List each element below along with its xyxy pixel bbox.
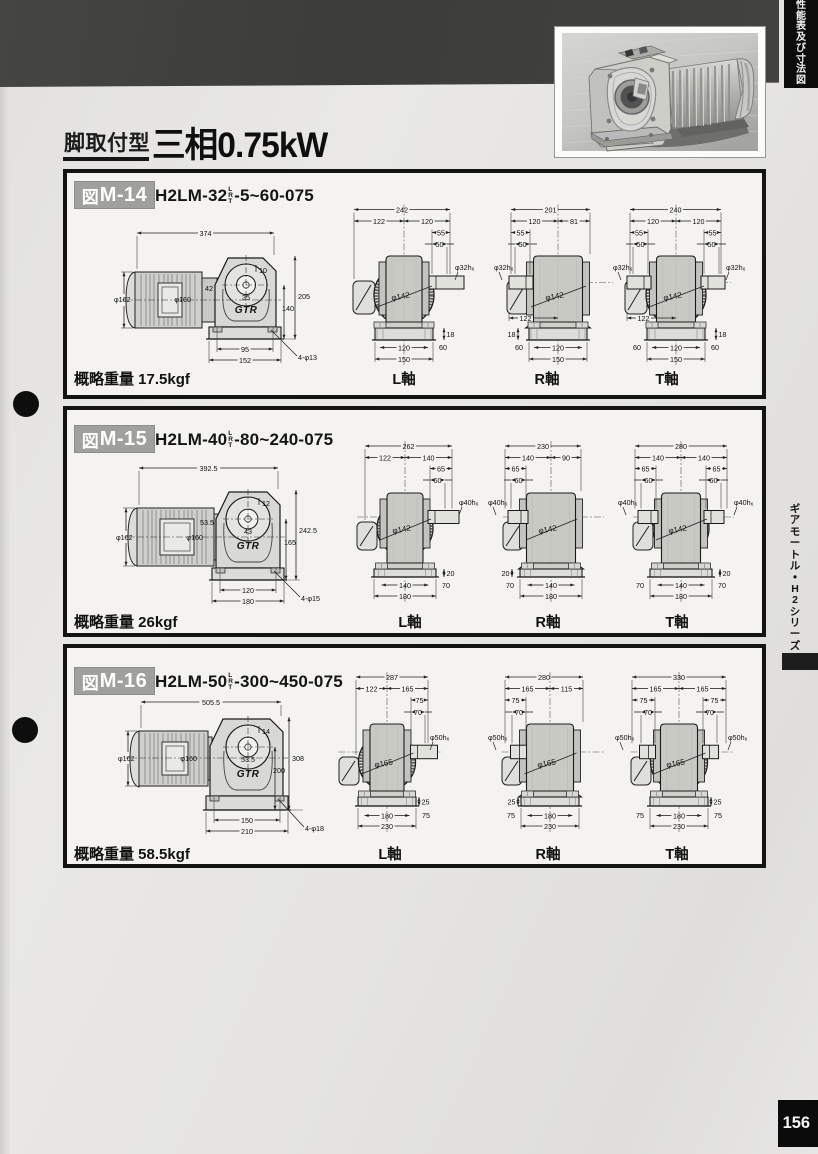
svg-text:230: 230 bbox=[673, 822, 685, 831]
svg-text:150: 150 bbox=[241, 816, 253, 825]
svg-text:φ32h₆: φ32h₆ bbox=[494, 263, 514, 272]
svg-text:60: 60 bbox=[515, 343, 523, 352]
svg-text:180: 180 bbox=[381, 811, 393, 820]
svg-text:230: 230 bbox=[544, 822, 556, 831]
svg-text:φ40h₆: φ40h₆ bbox=[488, 498, 508, 507]
svg-text:65: 65 bbox=[642, 464, 650, 473]
svg-text:53.5: 53.5 bbox=[241, 755, 255, 764]
svg-text:75: 75 bbox=[711, 696, 719, 705]
svg-text:φ40h₆: φ40h₆ bbox=[459, 498, 479, 507]
svg-text:150: 150 bbox=[670, 355, 682, 364]
svg-text:75: 75 bbox=[640, 696, 648, 705]
svg-text:φ50h₆: φ50h₆ bbox=[728, 733, 748, 742]
svg-text:180: 180 bbox=[242, 597, 254, 606]
svg-text:φ40h₆: φ40h₆ bbox=[734, 498, 754, 507]
svg-text:180: 180 bbox=[399, 592, 411, 601]
svg-text:150: 150 bbox=[552, 355, 564, 364]
svg-text:75: 75 bbox=[422, 811, 430, 820]
svg-text:75: 75 bbox=[714, 811, 722, 820]
svg-text:70: 70 bbox=[636, 581, 644, 590]
svg-text:120: 120 bbox=[693, 217, 705, 226]
svg-text:φ162: φ162 bbox=[118, 754, 135, 763]
svg-text:330: 330 bbox=[673, 673, 685, 682]
svg-text:505.5: 505.5 bbox=[202, 698, 220, 707]
svg-text:180: 180 bbox=[675, 592, 687, 601]
svg-text:70: 70 bbox=[706, 708, 714, 717]
svg-text:81: 81 bbox=[570, 217, 578, 226]
svg-text:150: 150 bbox=[398, 355, 410, 364]
svg-text:60: 60 bbox=[439, 343, 447, 352]
svg-text:GTR: GTR bbox=[237, 541, 260, 552]
svg-text:308: 308 bbox=[292, 754, 304, 763]
svg-text:287: 287 bbox=[386, 673, 398, 682]
svg-text:53.5: 53.5 bbox=[200, 518, 214, 527]
svg-text:374: 374 bbox=[200, 229, 212, 238]
svg-text:35: 35 bbox=[242, 293, 250, 302]
svg-text:180: 180 bbox=[545, 592, 557, 601]
svg-text:φ40h₆: φ40h₆ bbox=[618, 498, 638, 507]
svg-text:140: 140 bbox=[675, 581, 687, 590]
svg-text:75: 75 bbox=[512, 696, 520, 705]
svg-text:120: 120 bbox=[647, 217, 659, 226]
svg-text:122: 122 bbox=[379, 453, 391, 462]
svg-text:210: 210 bbox=[241, 827, 253, 836]
svg-text:140: 140 bbox=[522, 453, 534, 462]
svg-text:φ160: φ160 bbox=[174, 295, 191, 304]
svg-text:55: 55 bbox=[635, 228, 643, 237]
svg-text:12: 12 bbox=[262, 499, 270, 508]
svg-text:20: 20 bbox=[502, 569, 510, 578]
svg-text:18: 18 bbox=[447, 330, 455, 339]
svg-text:165: 165 bbox=[522, 684, 534, 693]
svg-text:120: 120 bbox=[421, 217, 433, 226]
svg-text:122: 122 bbox=[638, 314, 650, 323]
svg-text:165: 165 bbox=[650, 684, 662, 693]
svg-text:42: 42 bbox=[205, 284, 213, 293]
svg-text:280: 280 bbox=[538, 673, 550, 682]
svg-text:120: 120 bbox=[242, 586, 254, 595]
svg-text:180: 180 bbox=[544, 811, 556, 820]
svg-text:50: 50 bbox=[519, 240, 527, 249]
svg-text:70: 70 bbox=[506, 581, 514, 590]
svg-text:10: 10 bbox=[259, 266, 267, 275]
svg-text:120: 120 bbox=[670, 343, 682, 352]
svg-text:25: 25 bbox=[422, 797, 430, 806]
svg-text:70: 70 bbox=[515, 708, 523, 717]
svg-text:120: 120 bbox=[552, 343, 564, 352]
svg-text:75: 75 bbox=[507, 811, 515, 820]
svg-text:60: 60 bbox=[710, 476, 718, 485]
svg-text:165: 165 bbox=[284, 538, 296, 547]
svg-text:65: 65 bbox=[437, 464, 445, 473]
svg-text:φ160: φ160 bbox=[186, 533, 203, 542]
svg-text:200: 200 bbox=[273, 766, 285, 775]
svg-text:242: 242 bbox=[396, 205, 408, 214]
svg-text:φ162: φ162 bbox=[116, 533, 133, 542]
svg-text:14: 14 bbox=[262, 727, 270, 736]
svg-text:140: 140 bbox=[282, 304, 294, 313]
svg-text:50: 50 bbox=[436, 240, 444, 249]
svg-text:4-φ13: 4-φ13 bbox=[298, 353, 317, 362]
svg-text:122: 122 bbox=[520, 314, 532, 323]
svg-text:140: 140 bbox=[399, 581, 411, 590]
svg-text:280: 280 bbox=[675, 442, 687, 451]
svg-text:65: 65 bbox=[713, 464, 721, 473]
svg-text:230: 230 bbox=[537, 442, 549, 451]
svg-text:70: 70 bbox=[442, 581, 450, 590]
svg-text:60: 60 bbox=[711, 343, 719, 352]
svg-text:20: 20 bbox=[447, 569, 455, 578]
svg-text:60: 60 bbox=[645, 476, 653, 485]
svg-text:122: 122 bbox=[366, 684, 378, 693]
svg-text:4-φ15: 4-φ15 bbox=[301, 594, 320, 603]
svg-text:165: 165 bbox=[402, 684, 414, 693]
svg-text:φ160: φ160 bbox=[180, 754, 197, 763]
svg-text:90: 90 bbox=[562, 453, 570, 462]
svg-text:70: 70 bbox=[414, 708, 422, 717]
svg-text:75: 75 bbox=[636, 811, 644, 820]
svg-text:230: 230 bbox=[381, 822, 393, 831]
svg-text:122: 122 bbox=[373, 217, 385, 226]
svg-text:240: 240 bbox=[670, 205, 682, 214]
svg-text:242.5: 242.5 bbox=[299, 526, 317, 535]
svg-text:GTR: GTR bbox=[237, 769, 260, 780]
svg-text:70: 70 bbox=[644, 708, 652, 717]
svg-text:120: 120 bbox=[398, 343, 410, 352]
svg-text:50: 50 bbox=[708, 240, 716, 249]
svg-text:φ32h₆: φ32h₆ bbox=[726, 263, 746, 272]
svg-text:φ50h₆: φ50h₆ bbox=[615, 733, 635, 742]
svg-text:392.5: 392.5 bbox=[200, 464, 218, 473]
svg-text:140: 140 bbox=[698, 453, 710, 462]
svg-text:43: 43 bbox=[244, 527, 252, 536]
svg-text:φ32h₆: φ32h₆ bbox=[455, 263, 475, 272]
svg-text:152: 152 bbox=[239, 356, 251, 365]
svg-text:φ50h₆: φ50h₆ bbox=[430, 733, 450, 742]
svg-text:50: 50 bbox=[637, 240, 645, 249]
svg-text:120: 120 bbox=[529, 217, 541, 226]
svg-text:165: 165 bbox=[697, 684, 709, 693]
svg-text:φ50h₆: φ50h₆ bbox=[488, 733, 508, 742]
svg-text:25: 25 bbox=[508, 797, 516, 806]
svg-text:55: 55 bbox=[517, 228, 525, 237]
svg-text:140: 140 bbox=[545, 581, 557, 590]
svg-text:60: 60 bbox=[515, 476, 523, 485]
svg-text:95: 95 bbox=[241, 345, 249, 354]
svg-text:201: 201 bbox=[545, 205, 557, 214]
svg-text:25: 25 bbox=[714, 797, 722, 806]
svg-text:55: 55 bbox=[709, 228, 717, 237]
svg-text:140: 140 bbox=[423, 453, 435, 462]
svg-text:GTR: GTR bbox=[235, 305, 258, 316]
svg-text:18: 18 bbox=[508, 330, 516, 339]
svg-text:18: 18 bbox=[719, 330, 727, 339]
svg-text:70: 70 bbox=[718, 581, 726, 590]
svg-text:115: 115 bbox=[561, 684, 572, 693]
svg-text:φ162: φ162 bbox=[114, 295, 131, 304]
svg-text:65: 65 bbox=[512, 464, 520, 473]
svg-text:20: 20 bbox=[723, 569, 731, 578]
svg-text:4-φ18: 4-φ18 bbox=[305, 824, 324, 833]
svg-text:262: 262 bbox=[403, 442, 415, 451]
svg-text:180: 180 bbox=[673, 811, 685, 820]
svg-text:205: 205 bbox=[298, 292, 310, 301]
svg-text:75: 75 bbox=[416, 696, 424, 705]
svg-text:55: 55 bbox=[437, 228, 445, 237]
svg-text:60: 60 bbox=[434, 476, 442, 485]
svg-text:60: 60 bbox=[633, 343, 641, 352]
svg-text:140: 140 bbox=[652, 453, 664, 462]
svg-text:φ32h₆: φ32h₆ bbox=[613, 263, 633, 272]
